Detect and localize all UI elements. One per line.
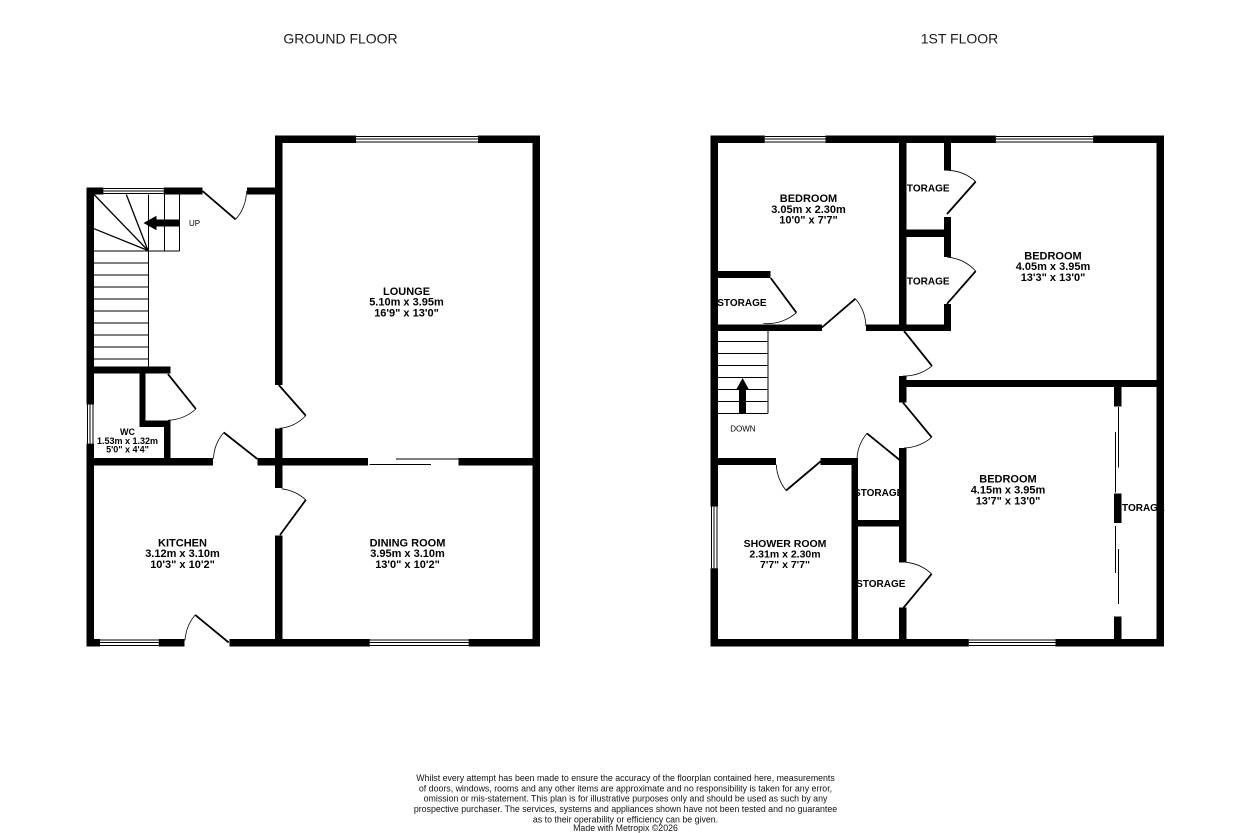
svg-text:STORAGE: STORAGE: [854, 488, 904, 499]
svg-text:DOWN: DOWN: [730, 424, 756, 433]
svg-text:Made with Metropix ©2026: Made with Metropix ©2026: [573, 823, 678, 833]
svg-text:1ST FLOOR: 1ST FLOOR: [921, 31, 999, 47]
svg-text:omission or mis-statement. Thi: omission or mis-statement. This plan is …: [424, 794, 828, 804]
svg-text:STORAGE: STORAGE: [717, 298, 767, 309]
svg-text:STORAGE: STORAGE: [856, 579, 906, 590]
svg-text:STORAGE: STORAGE: [900, 184, 950, 195]
svg-text:prospective purchaser. The ser: prospective purchaser. The services, sys…: [414, 804, 837, 814]
svg-text:13'3" x 13'0": 13'3" x 13'0": [1021, 272, 1086, 284]
svg-text:16'9" x 13'0": 16'9" x 13'0": [374, 307, 439, 319]
svg-text:10'0" x 7'7": 10'0" x 7'7": [779, 215, 837, 227]
svg-text:Whilst every attempt has been: Whilst every attempt has been made to en…: [416, 773, 835, 783]
svg-text:7'7" x 7'7": 7'7" x 7'7": [760, 559, 810, 571]
svg-text:13'7" x 13'0": 13'7" x 13'0": [976, 495, 1041, 507]
svg-text:GROUND FLOOR: GROUND FLOOR: [283, 31, 397, 47]
svg-text:UP: UP: [189, 219, 200, 228]
svg-text:of doors, windows, rooms and a: of doors, windows, rooms and any other i…: [419, 783, 832, 793]
svg-text:STORAGE: STORAGE: [900, 277, 950, 288]
svg-text:5'0" x 4'4": 5'0" x 4'4": [106, 445, 149, 455]
svg-text:13'0" x 10'2": 13'0" x 10'2": [375, 559, 440, 571]
svg-text:10'3" x 10'2": 10'3" x 10'2": [150, 559, 215, 571]
